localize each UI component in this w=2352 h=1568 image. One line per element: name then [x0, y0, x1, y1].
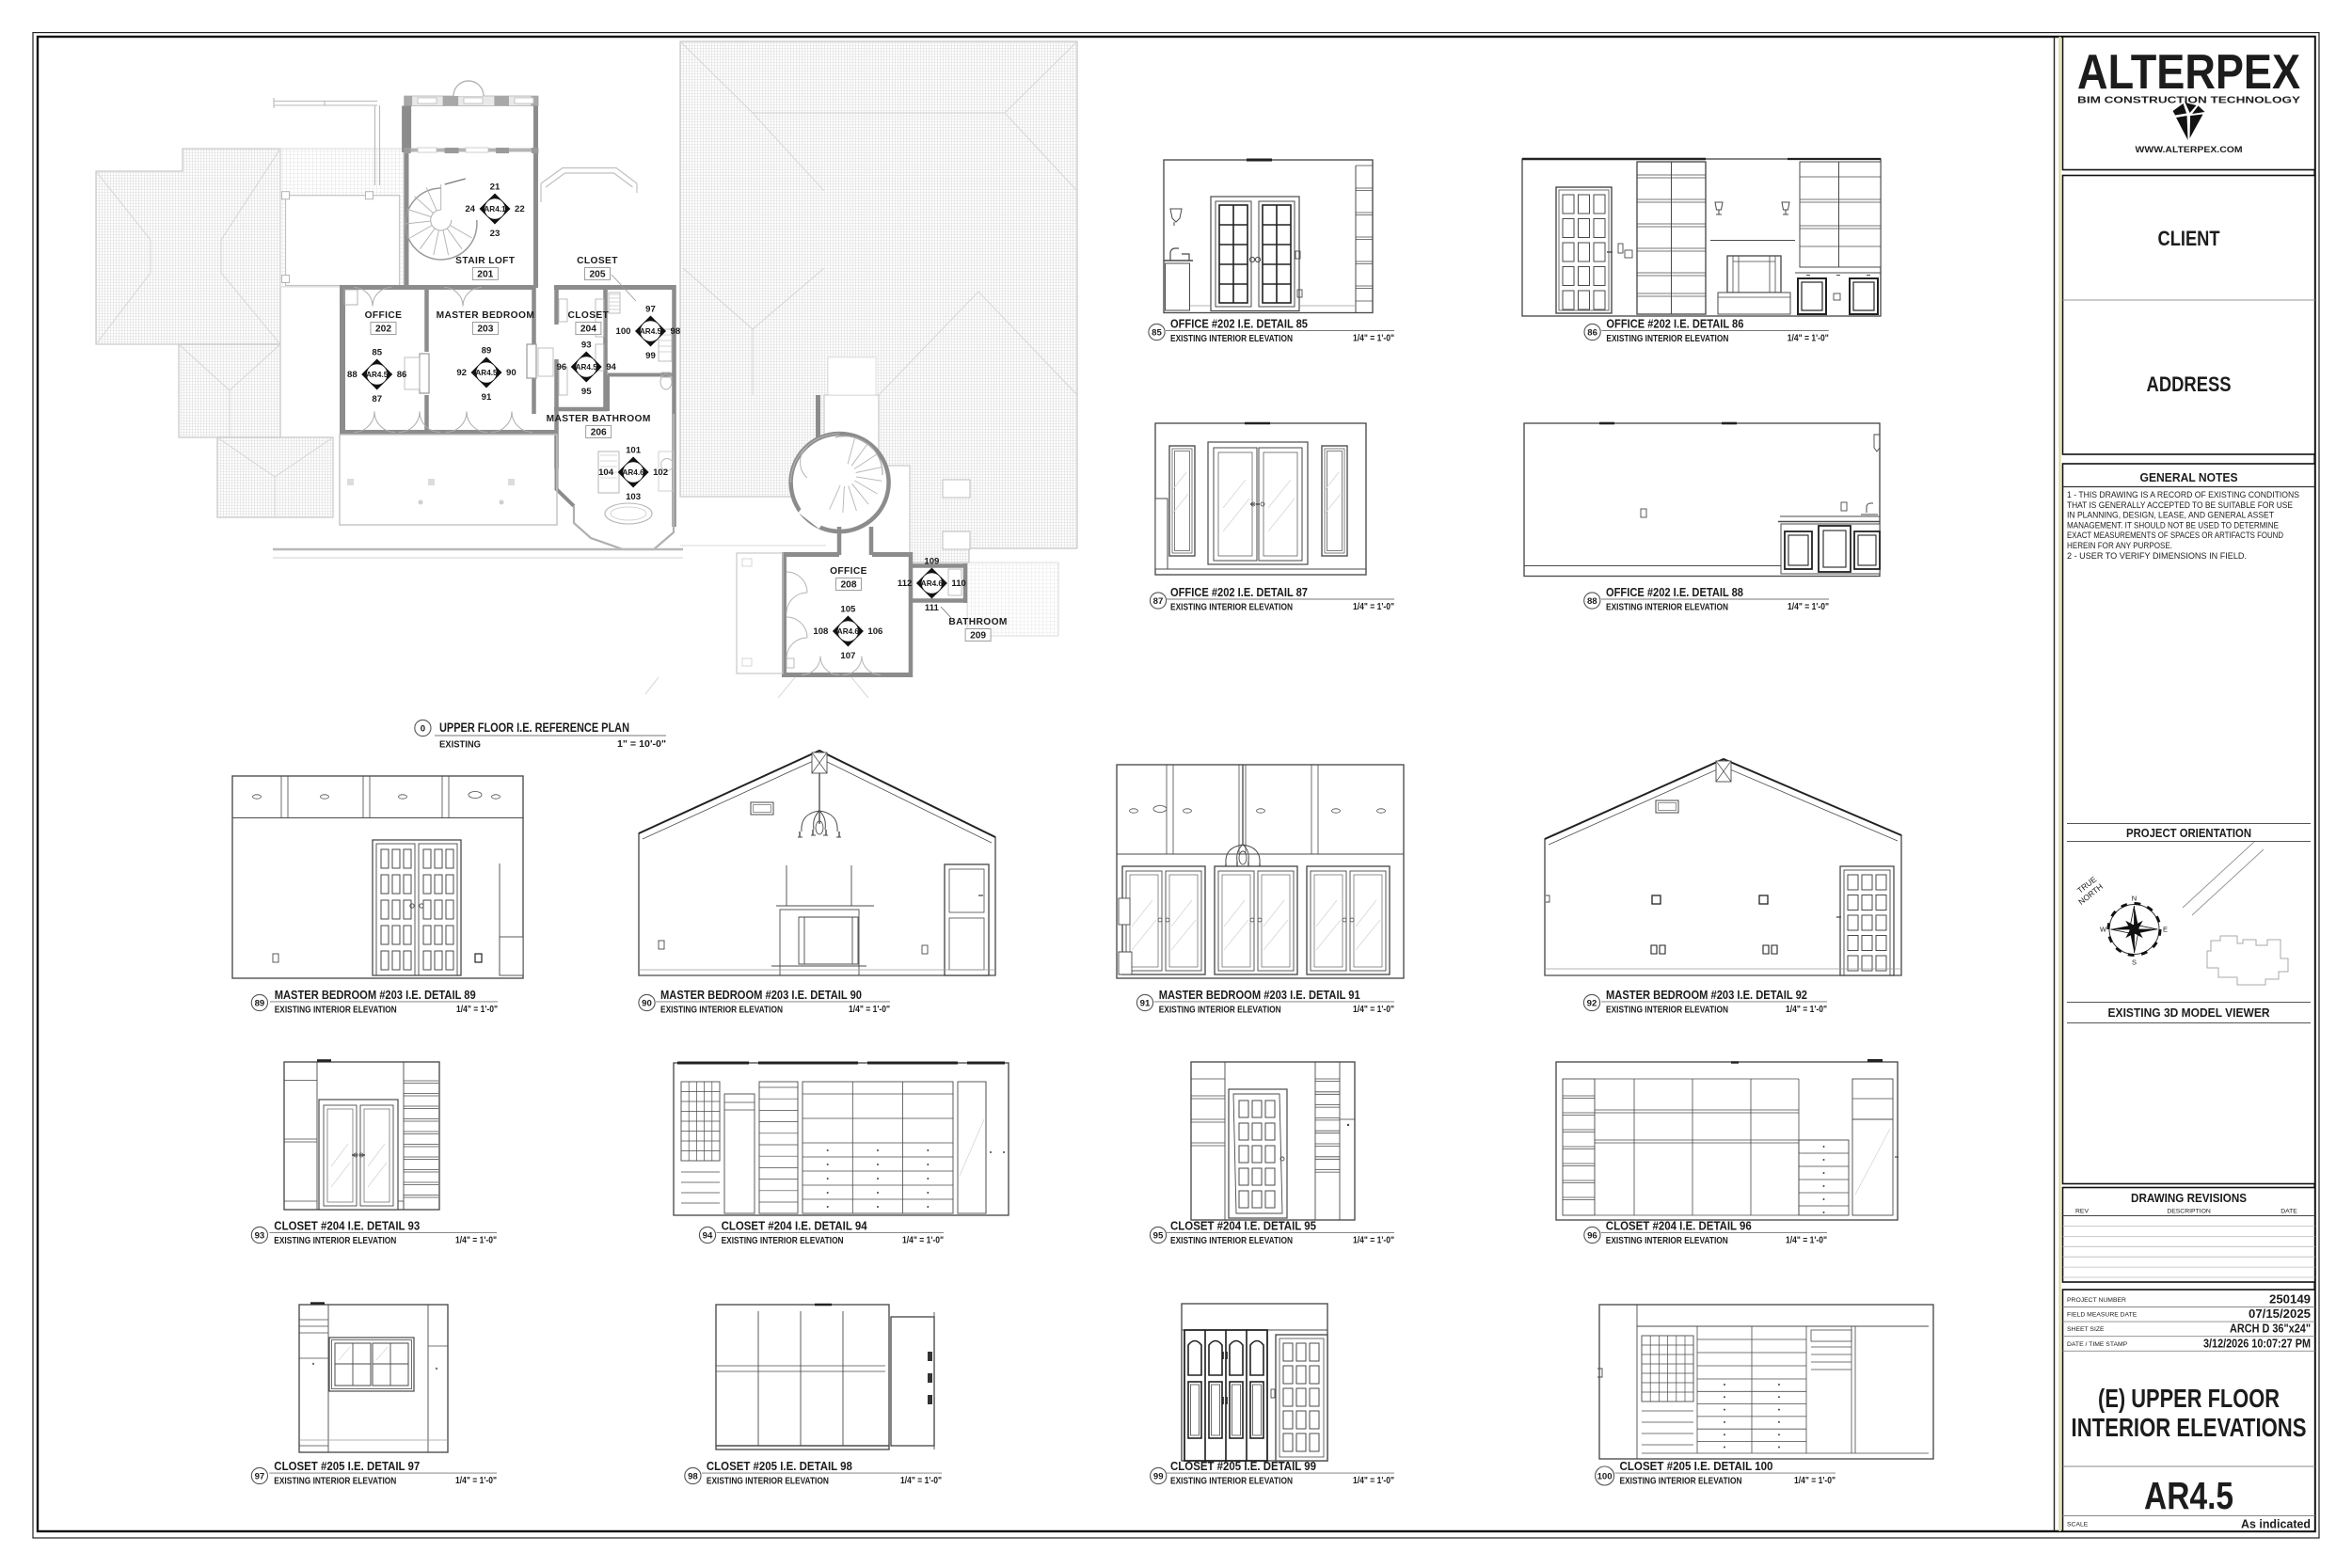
svg-text:MASTER BEDROOM #203 I.E. DETAI: MASTER BEDROOM #203 I.E. DETAIL 92: [1606, 988, 1807, 1002]
svg-text:MASTER BEDROOM #203 I.E. DETAI: MASTER BEDROOM #203 I.E. DETAIL 90: [660, 988, 862, 1002]
svg-text:97: 97: [255, 1471, 265, 1481]
svg-text:EXISTING INTERIOR ELEVATION: EXISTING INTERIOR ELEVATION: [1170, 1477, 1293, 1487]
svg-text:REV: REV: [2075, 1209, 2089, 1215]
svg-text:AR4.5: AR4.5: [2144, 1474, 2233, 1517]
svg-text:103: 103: [626, 492, 641, 502]
svg-text:(E) UPPER FLOOR: (E) UPPER FLOOR: [2098, 1384, 2280, 1413]
svg-text:87: 87: [1153, 596, 1164, 607]
svg-text:202: 202: [375, 325, 391, 335]
svg-text:SHEET SIZE: SHEET SIZE: [2067, 1326, 2105, 1333]
svg-text:EXISTING INTERIOR ELEVATION: EXISTING INTERIOR ELEVATION: [1170, 1236, 1293, 1246]
svg-text:24: 24: [465, 204, 475, 214]
svg-text:MASTER BEDROOM: MASTER BEDROOM: [437, 310, 535, 321]
svg-text:111: 111: [925, 603, 940, 613]
svg-text:1/4" = 1'-0": 1/4" = 1'-0": [1788, 602, 1829, 612]
svg-text:S: S: [2132, 958, 2137, 967]
svg-text:209: 209: [970, 631, 986, 641]
svg-text:EXISTING 3D MODEL VIEWER: EXISTING 3D MODEL VIEWER: [2108, 1006, 2271, 1020]
svg-text:85: 85: [1152, 327, 1162, 338]
svg-text:1/4" = 1'-0": 1/4" = 1'-0": [455, 1236, 497, 1246]
svg-text:ARCH D 36"x24": ARCH D 36"x24": [2230, 1323, 2311, 1336]
svg-text:1/4" = 1'-0": 1/4" = 1'-0": [1353, 1236, 1394, 1246]
svg-text:OFFICE #202 I.E. DETAIL 87: OFFICE #202 I.E. DETAIL 87: [1170, 585, 1308, 599]
svg-text:23: 23: [490, 229, 501, 239]
svg-text:90: 90: [642, 998, 652, 1008]
svg-text:CLOSET #205 I.E. DETAIL 100: CLOSET #205 I.E. DETAIL 100: [1620, 1459, 1773, 1473]
svg-text:CLOSET #204 I.E. DETAIL 96: CLOSET #204 I.E. DETAIL 96: [1606, 1219, 1752, 1233]
svg-text:96: 96: [557, 362, 567, 372]
svg-text:21: 21: [490, 182, 501, 193]
svg-text:THAT IS GENERALLY ACCEPTED TO: THAT IS GENERALLY ACCEPTED TO BE SUITABL…: [2067, 500, 2293, 511]
svg-text:1/4" = 1'-0": 1/4" = 1'-0": [456, 1005, 498, 1015]
svg-text:CLIENT: CLIENT: [2158, 227, 2220, 250]
svg-text:FIELD MEASURE DATE: FIELD MEASURE DATE: [2067, 1312, 2137, 1319]
svg-text:MASTER BEDROOM #203 I.E. DETAI: MASTER BEDROOM #203 I.E. DETAIL 89: [275, 988, 476, 1002]
svg-text:1/4" = 1'-0": 1/4" = 1'-0": [849, 1005, 890, 1015]
svg-text:OFFICE: OFFICE: [830, 566, 867, 577]
svg-text:CLOSET #205 I.E. DETAIL 98: CLOSET #205 I.E. DETAIL 98: [707, 1459, 852, 1473]
svg-text:EXISTING INTERIOR ELEVATION: EXISTING INTERIOR ELEVATION: [1620, 1477, 1742, 1487]
svg-text:OFFICE: OFFICE: [365, 310, 403, 321]
svg-text:203: 203: [477, 325, 493, 335]
svg-text:108: 108: [813, 626, 829, 637]
svg-text:EXISTING INTERIOR ELEVATION: EXISTING INTERIOR ELEVATION: [1170, 603, 1293, 613]
svg-text:N: N: [2132, 895, 2137, 903]
svg-text:1/4" = 1'-0": 1/4" = 1'-0": [1353, 1005, 1394, 1015]
svg-text:PROJECT NUMBER: PROJECT NUMBER: [2067, 1297, 2126, 1304]
svg-text:SCALE: SCALE: [2067, 1522, 2089, 1528]
svg-text:AR4.6: AR4.6: [921, 579, 944, 588]
svg-text:204: 204: [580, 325, 596, 335]
svg-text:1/4" = 1'-0": 1/4" = 1'-0": [1353, 334, 1394, 344]
svg-text:105: 105: [840, 605, 856, 615]
svg-text:CLOSET #205 I.E. DETAIL 97: CLOSET #205 I.E. DETAIL 97: [274, 1459, 420, 1473]
svg-text:BATHROOM: BATHROOM: [948, 617, 1007, 627]
svg-text:91: 91: [1140, 998, 1151, 1008]
svg-text:107: 107: [840, 651, 855, 661]
svg-text:AR4.5: AR4.5: [576, 363, 598, 372]
svg-text:1 - THIS DRAWING IS A RECORD O: 1 - THIS DRAWING IS A RECORD OF EXISTING…: [2067, 490, 2299, 500]
svg-text:EXACT MEASUREMENTS OF SPACES O: EXACT MEASUREMENTS OF SPACES OR ARTIFACT…: [2067, 531, 2283, 541]
svg-text:94: 94: [703, 1230, 713, 1241]
svg-text:1/4" = 1'-0": 1/4" = 1'-0": [1786, 1236, 1827, 1246]
svg-text:88: 88: [347, 370, 358, 380]
svg-text:CLOSET: CLOSET: [568, 310, 610, 321]
svg-text:07/15/2025: 07/15/2025: [2249, 1307, 2311, 1321]
svg-text:OFFICE #202 I.E. DETAIL 86: OFFICE #202 I.E. DETAIL 86: [1606, 317, 1743, 331]
svg-text:110: 110: [951, 578, 965, 589]
svg-text:86: 86: [397, 370, 407, 380]
svg-text:HEREIN FOR ANY PURPOSE.: HEREIN FOR ANY PURPOSE.: [2067, 541, 2172, 551]
svg-text:EXISTING INTERIOR ELEVATION: EXISTING INTERIOR ELEVATION: [660, 1005, 783, 1015]
svg-text:AR4.6: AR4.6: [622, 468, 644, 477]
svg-text:1/4" = 1'-0": 1/4" = 1'-0": [902, 1236, 944, 1246]
svg-text:EXISTING INTERIOR ELEVATION: EXISTING INTERIOR ELEVATION: [1606, 1236, 1728, 1246]
svg-text:EXISTING INTERIOR ELEVATION: EXISTING INTERIOR ELEVATION: [707, 1477, 829, 1487]
svg-text:98: 98: [671, 326, 681, 337]
svg-text:DRAWING REVISIONS: DRAWING REVISIONS: [2131, 1191, 2247, 1205]
svg-text:91: 91: [482, 392, 492, 403]
svg-text:AR4.6: AR4.6: [837, 627, 860, 636]
svg-text:93: 93: [581, 341, 592, 351]
svg-text:EXISTING INTERIOR ELEVATION: EXISTING INTERIOR ELEVATION: [1606, 334, 1728, 344]
svg-text:DATE / TIME STAMP: DATE / TIME STAMP: [2067, 1341, 2128, 1348]
svg-text:98: 98: [688, 1471, 698, 1481]
svg-text:CLOSET #204 I.E. DETAIL 94: CLOSET #204 I.E. DETAIL 94: [722, 1219, 868, 1233]
svg-text:1/4" = 1'-0": 1/4" = 1'-0": [1786, 1005, 1827, 1015]
svg-text:GENERAL NOTES: GENERAL NOTES: [2140, 470, 2238, 484]
svg-text:93: 93: [255, 1230, 265, 1241]
svg-text:95: 95: [581, 387, 592, 397]
svg-text:PROJECT ORIENTATION: PROJECT ORIENTATION: [2126, 826, 2251, 840]
svg-text:1/4" = 1'-0": 1/4" = 1'-0": [1353, 1476, 1394, 1486]
svg-text:1" = 10'-0": 1" = 10'-0": [617, 739, 666, 750]
svg-text:88: 88: [1587, 596, 1597, 607]
svg-text:1/4" = 1'-0": 1/4" = 1'-0": [1794, 1476, 1836, 1486]
svg-text:MANAGEMENT. IT SHOULD NOT BE U: MANAGEMENT. IT SHOULD NOT BE USED TO DET…: [2067, 520, 2279, 531]
svg-text:DESCRIPTION: DESCRIPTION: [2167, 1209, 2211, 1215]
svg-text:EXISTING INTERIOR ELEVATION: EXISTING INTERIOR ELEVATION: [274, 1236, 396, 1246]
svg-text:87: 87: [372, 394, 382, 404]
svg-text:0: 0: [421, 723, 425, 734]
svg-text:AR4.5: AR4.5: [475, 369, 498, 377]
svg-text:IN PLANNING, DESIGN, LEASE, AN: IN PLANNING, DESIGN, LEASE, AND GENERAL …: [2067, 511, 2274, 521]
svg-text:100: 100: [1597, 1471, 1613, 1481]
svg-text:1/4" = 1'-0": 1/4" = 1'-0": [1353, 602, 1394, 612]
svg-text:EXISTING INTERIOR ELEVATION: EXISTING INTERIOR ELEVATION: [1606, 603, 1728, 613]
svg-text:EXISTING INTERIOR ELEVATION: EXISTING INTERIOR ELEVATION: [1606, 1005, 1728, 1015]
svg-text:89: 89: [255, 998, 265, 1008]
svg-text:OFFICE #202 I.E. DETAIL 88: OFFICE #202 I.E. DETAIL 88: [1606, 585, 1743, 599]
svg-text:90: 90: [506, 368, 516, 378]
svg-text:250149: 250149: [2269, 1293, 2311, 1307]
svg-text:205: 205: [590, 270, 606, 280]
svg-text:AR4.1: AR4.1: [484, 205, 506, 214]
svg-text:UPPER FLOOR I.E. REFERENCE PLA: UPPER FLOOR I.E. REFERENCE PLAN: [439, 721, 629, 735]
svg-text:EXISTING INTERIOR ELEVATION: EXISTING INTERIOR ELEVATION: [274, 1477, 396, 1487]
svg-text:E: E: [2163, 926, 2168, 934]
svg-text:CLOSET #204 I.E. DETAIL 95: CLOSET #204 I.E. DETAIL 95: [1170, 1219, 1316, 1233]
svg-text:1/4" = 1'-0": 1/4" = 1'-0": [1788, 334, 1829, 344]
svg-text:EXISTING: EXISTING: [439, 740, 481, 751]
svg-text:99: 99: [1153, 1471, 1164, 1481]
svg-text:109: 109: [924, 557, 939, 567]
svg-text:95: 95: [1153, 1230, 1164, 1241]
svg-text:W: W: [2100, 926, 2107, 934]
svg-text:ADDRESS: ADDRESS: [2147, 372, 2232, 396]
svg-text:EXISTING INTERIOR ELEVATION: EXISTING INTERIOR ELEVATION: [1170, 334, 1293, 344]
svg-text:92: 92: [456, 368, 467, 378]
svg-text:CLOSET: CLOSET: [577, 256, 618, 266]
svg-text:208: 208: [841, 580, 857, 591]
svg-text:DATE: DATE: [2280, 1209, 2297, 1215]
svg-text:ALTERPEX: ALTERPEX: [2077, 45, 2300, 100]
svg-text:1/4" = 1'-0": 1/4" = 1'-0": [455, 1476, 497, 1486]
svg-text:As indicated: As indicated: [2241, 1518, 2311, 1531]
svg-text:86: 86: [1587, 327, 1597, 338]
svg-text:MASTER BEDROOM #203 I.E. DETAI: MASTER BEDROOM #203 I.E. DETAIL 91: [1159, 988, 1360, 1002]
svg-text:97: 97: [645, 305, 656, 315]
svg-text:WWW.ALTERPEX.COM: WWW.ALTERPEX.COM: [2136, 145, 2243, 155]
svg-text:AR4.5: AR4.5: [366, 371, 389, 379]
svg-text:101: 101: [626, 446, 642, 456]
svg-text:100: 100: [615, 326, 630, 337]
svg-text:OFFICE #202 I.E. DETAIL 85: OFFICE #202 I.E. DETAIL 85: [1170, 317, 1308, 331]
svg-text:EXISTING INTERIOR ELEVATION: EXISTING INTERIOR ELEVATION: [275, 1005, 397, 1015]
svg-text:94: 94: [606, 362, 616, 372]
svg-text:99: 99: [645, 351, 656, 361]
svg-text:EXISTING INTERIOR ELEVATION: EXISTING INTERIOR ELEVATION: [1159, 1005, 1281, 1015]
svg-text:3/12/2026 10:07:27 PM: 3/12/2026 10:07:27 PM: [2203, 1337, 2311, 1350]
svg-text:1/4" = 1'-0": 1/4" = 1'-0": [900, 1476, 942, 1486]
svg-text:85: 85: [372, 348, 382, 358]
svg-text:STAIR LOFT: STAIR LOFT: [455, 256, 516, 266]
svg-text:92: 92: [1587, 998, 1597, 1008]
svg-text:INTERIOR ELEVATIONS: INTERIOR ELEVATIONS: [2072, 1413, 2307, 1442]
svg-text:206: 206: [591, 428, 607, 438]
svg-text:89: 89: [482, 346, 492, 356]
svg-text:102: 102: [653, 467, 668, 478]
svg-text:CLOSET #204 I.E. DETAIL 93: CLOSET #204 I.E. DETAIL 93: [274, 1219, 420, 1233]
svg-text:MASTER BATHROOM: MASTER BATHROOM: [547, 414, 651, 424]
svg-text:201: 201: [477, 270, 493, 280]
svg-text:104: 104: [598, 467, 614, 478]
svg-text:AR4.5: AR4.5: [640, 327, 662, 336]
svg-text:106: 106: [867, 626, 882, 637]
svg-text:EXISTING INTERIOR ELEVATION: EXISTING INTERIOR ELEVATION: [722, 1236, 844, 1246]
svg-text:22: 22: [515, 204, 525, 214]
svg-text:CLOSET #205 I.E. DETAIL 99: CLOSET #205 I.E. DETAIL 99: [1170, 1459, 1316, 1473]
svg-text:96: 96: [1587, 1230, 1597, 1241]
svg-text:2 - USER TO VERIFY DIMENSIONS: 2 - USER TO VERIFY DIMENSIONS IN FIELD.: [2067, 551, 2247, 562]
svg-text:112: 112: [898, 578, 912, 589]
